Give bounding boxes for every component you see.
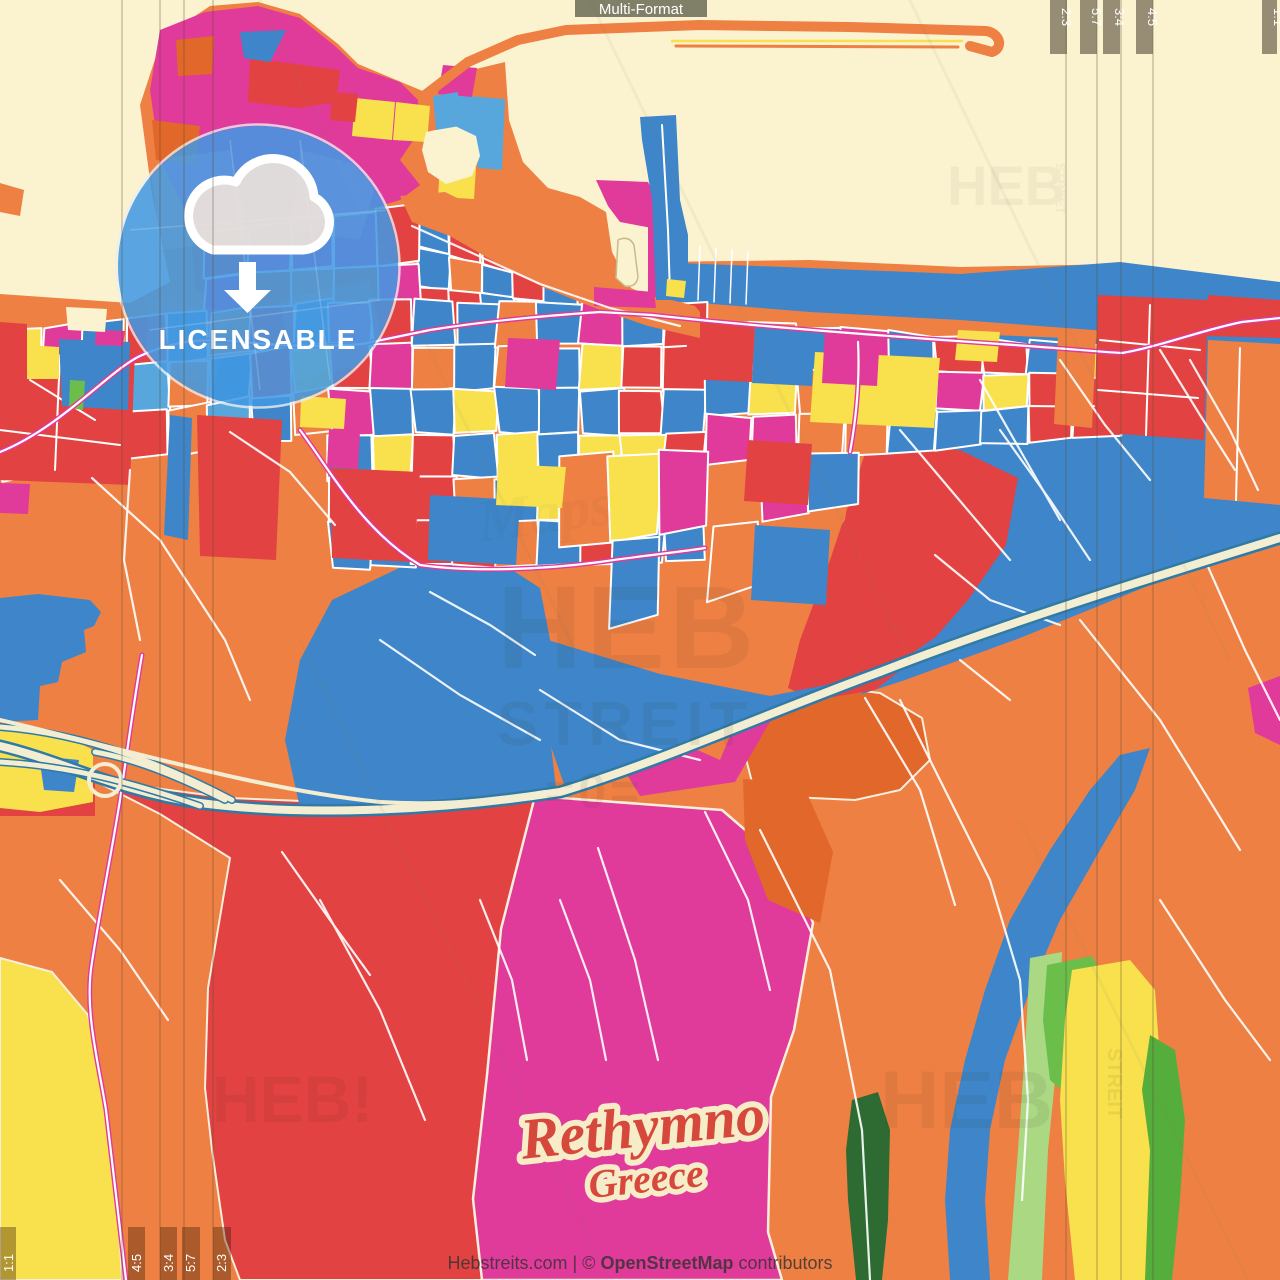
svg-text:LICENSABLE: LICENSABLE	[159, 324, 358, 355]
svg-text:2:3: 2:3	[214, 1254, 229, 1272]
svg-text:1:1: 1:1	[1, 1254, 16, 1272]
svg-text:4:5: 4:5	[129, 1254, 144, 1272]
svg-text:HEB!: HEB!	[212, 1062, 373, 1136]
svg-text:=0=: =0=	[545, 763, 643, 819]
svg-text:2:3: 2:3	[1059, 8, 1074, 26]
svg-text:4:5: 4:5	[1145, 8, 1160, 26]
svg-text:1:1: 1:1	[1271, 8, 1280, 26]
svg-text:HEB: HEB	[947, 154, 1065, 217]
svg-text:5:7: 5:7	[1089, 8, 1104, 26]
svg-text:HEB: HEB	[497, 562, 758, 694]
svg-text:Hebstreits.com | © OpenStreetM: Hebstreits.com | © OpenStreetMap contrib…	[447, 1253, 832, 1273]
svg-text:Multi-Format: Multi-Format	[599, 1, 684, 18]
svg-text:3:4: 3:4	[161, 1254, 176, 1272]
svg-text:3:4: 3:4	[1112, 8, 1127, 26]
svg-text:5:7: 5:7	[183, 1254, 198, 1272]
svg-text:HEB: HEB	[880, 1055, 1053, 1146]
svg-text:STREIT: STREIT	[497, 690, 753, 759]
